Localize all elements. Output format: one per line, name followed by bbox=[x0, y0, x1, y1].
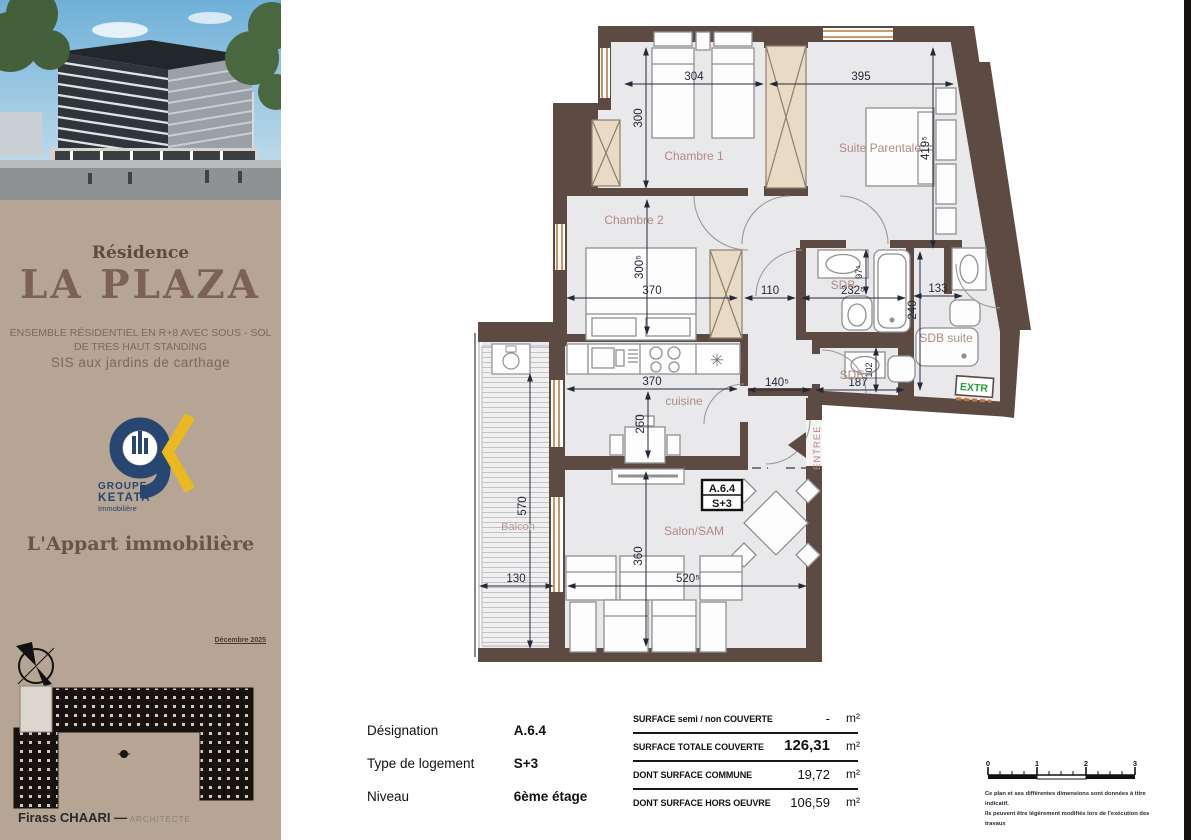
groupe-ketata-logo: GROUPE KETATA Immobilière bbox=[0, 405, 281, 520]
info-value: A.6.4 bbox=[514, 723, 546, 738]
disclaimer-line2: Ils peuvent être légèrement modifiés lor… bbox=[985, 810, 1155, 830]
label-sde: SDE bbox=[840, 368, 865, 382]
dim-balcon-h: 570 bbox=[517, 496, 529, 515]
unit-designation: A.6.4 bbox=[709, 483, 736, 495]
label-balcon: Balcon bbox=[501, 521, 535, 533]
site-plan bbox=[14, 686, 253, 808]
sidebar: Résidence LA PLAZA ENSEMBLE RÉSIDENTIEL … bbox=[0, 0, 281, 840]
surface-value: 126,31 bbox=[784, 737, 830, 754]
dim-chambre1-w: 304 bbox=[684, 71, 704, 83]
label-cuisine: cuisine bbox=[665, 394, 703, 408]
dim-suite-w: 395 bbox=[851, 71, 870, 83]
info-label: Type de logement bbox=[367, 756, 510, 771]
residence-label: Résidence bbox=[0, 243, 281, 263]
page-edge-band bbox=[1184, 0, 1191, 840]
surface-value: 19,72 bbox=[797, 767, 830, 782]
dim-salon-h: 360 bbox=[633, 546, 645, 565]
surface-value: - bbox=[826, 711, 830, 726]
dim-chambre2-h: 300⁵ bbox=[634, 255, 646, 279]
subtitle-line2: DE TRES HAUT STANDING bbox=[0, 341, 281, 353]
scale-tick-2: 2 bbox=[1084, 759, 1088, 768]
surface-unit: m² bbox=[846, 711, 860, 725]
label-suite: Suite Parentale bbox=[839, 141, 921, 155]
disclaimer-line1: Ce plan et ses différentes dimensions so… bbox=[985, 790, 1155, 810]
scale-tick-3: 3 bbox=[1133, 759, 1137, 768]
architect-credit: Firass CHAARI — ARCHITECTE bbox=[18, 810, 278, 825]
unit-type: S+3 bbox=[712, 498, 732, 510]
surface-label: SURFACE semi / non COUVERTE bbox=[633, 714, 773, 724]
floorplan-sheet: { "sidebar": { "residence": "Résidence",… bbox=[0, 0, 1191, 840]
dim-chambre1-h: 300 bbox=[633, 108, 645, 127]
info-label: Niveau bbox=[367, 789, 510, 804]
label-salon: Salon/SAM bbox=[664, 524, 724, 538]
architect-name: Firass CHAARI bbox=[18, 810, 110, 825]
label-sdb-suite: SDB suite bbox=[919, 331, 973, 345]
building-render-photo bbox=[0, 0, 281, 200]
surface-unit: m² bbox=[846, 739, 860, 753]
project-title: LA PLAZA bbox=[0, 262, 281, 308]
dim-sde-h: 102 bbox=[864, 362, 874, 377]
unit-box: A.6.4 S+3 bbox=[702, 480, 742, 510]
dim-right-h: 240 bbox=[907, 300, 919, 319]
label-sdb: SDB bbox=[831, 278, 856, 292]
scale-tick-0: 0 bbox=[986, 759, 990, 768]
label-extr: EXTR bbox=[960, 381, 989, 395]
info-value: 6ème étage bbox=[514, 789, 588, 804]
architect-title: ARCHITECTE bbox=[130, 815, 191, 824]
dim-chambre2-w: 370 bbox=[642, 285, 661, 297]
agency-name: L'Appart immobilière bbox=[0, 533, 281, 555]
surface-value: 106,59 bbox=[790, 795, 830, 810]
dim-entry-w: 140⁵ bbox=[765, 377, 789, 389]
label-entree: ENTREE bbox=[812, 425, 823, 470]
architect-dash: — bbox=[114, 810, 126, 825]
info-value: S+3 bbox=[514, 756, 538, 771]
subtitle-line1: ENSEMBLE RÉSIDENTIEL EN R+8 AVEC SOUS - … bbox=[0, 327, 281, 339]
label-chambre1: Chambre 1 bbox=[664, 149, 724, 163]
dim-balcon-w: 130 bbox=[506, 573, 525, 585]
logo-k-icon bbox=[168, 416, 190, 490]
dim-suite-h: 419⁵ bbox=[920, 136, 932, 160]
surface-unit: m² bbox=[846, 767, 860, 781]
subtitle-line3: SIS aux jardins de carthage bbox=[0, 355, 281, 370]
key-plan bbox=[0, 630, 281, 810]
surface-label: SURFACE TOTALE COUVERTE bbox=[633, 742, 764, 752]
surface-label: DONT SURFACE HORS OEUVRE bbox=[633, 798, 771, 808]
surface-label: DONT SURFACE COMMUNE bbox=[633, 770, 752, 780]
scale-tick-1: 1 bbox=[1035, 759, 1039, 768]
appliance-asterisk-icon: ✳ bbox=[710, 351, 724, 371]
dim-cuisine-h: 260 bbox=[635, 414, 647, 433]
surface-unit: m² bbox=[846, 795, 860, 809]
logo-name-text: KETATA bbox=[98, 492, 151, 504]
logo-sub-text: Immobilière bbox=[98, 504, 137, 513]
disclaimer: Ce plan et ses différentes dimensions so… bbox=[985, 790, 1155, 829]
dim-cuisine-w: 370 bbox=[642, 376, 661, 388]
dim-sdb-h: 97⁵ bbox=[854, 265, 864, 279]
balcony bbox=[475, 333, 553, 657]
info-label: Désignation bbox=[367, 723, 510, 738]
compass-icon bbox=[16, 642, 54, 686]
dim-hall-w: 110 bbox=[761, 285, 779, 297]
dim-right-w: 133 bbox=[928, 283, 947, 295]
label-chambre2: Chambre 2 bbox=[604, 213, 664, 227]
dim-salon-w: 520⁵ bbox=[676, 573, 700, 585]
scale-bar: 0 1 2 3 bbox=[985, 758, 1137, 784]
logo-group-text: GROUPE bbox=[98, 481, 147, 492]
highlighted-unit bbox=[20, 686, 52, 732]
